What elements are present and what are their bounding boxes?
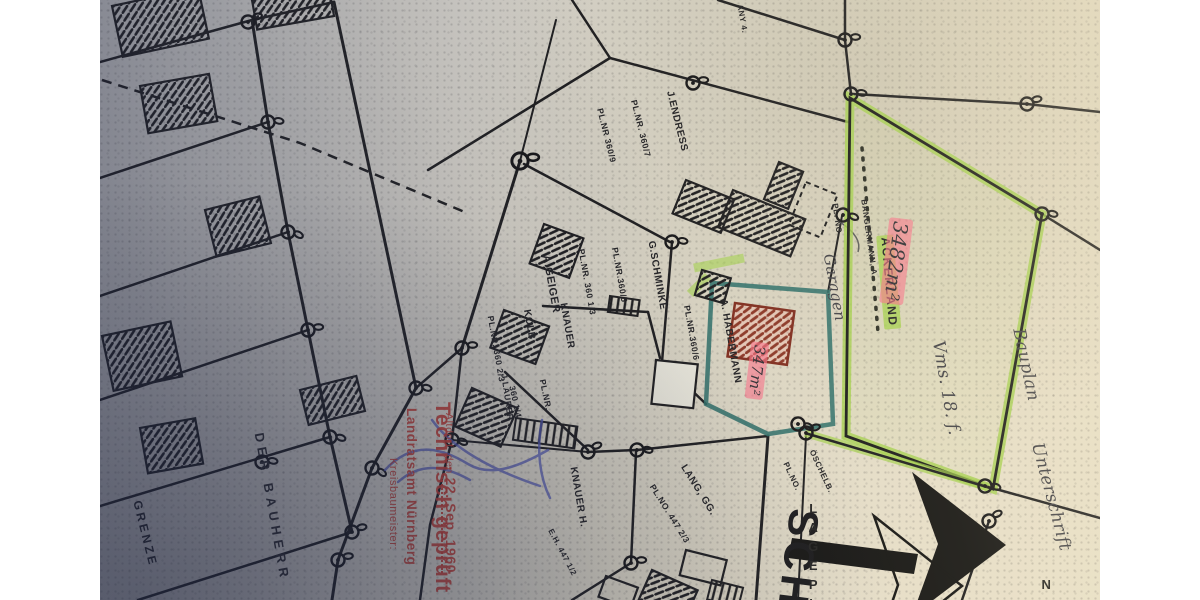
map-photo: J.ENDRESS PL.NR. 360/7 PL.NR 360/9 PL.NR…: [100, 0, 1100, 600]
parcel-label-knauer-h: KNAUER H.: [542, 462, 613, 533]
lageplan-label: LAGEPLAN M.: [789, 406, 837, 600]
stamp-kreisbaumeister: Kreisbaumeister:: [359, 458, 426, 550]
area-347-annotation: 347m²: [708, 337, 806, 405]
norden-label: NORDEN: [1022, 462, 1070, 600]
scanned-site-plan-page: J.ENDRESS PL.NR. 360/7 PL.NR 360/9 PL.NR…: [0, 0, 1200, 600]
paper-texture: J.ENDRESS PL.NR. 360/7 PL.NR 360/9 PL.NR…: [100, 0, 1100, 600]
